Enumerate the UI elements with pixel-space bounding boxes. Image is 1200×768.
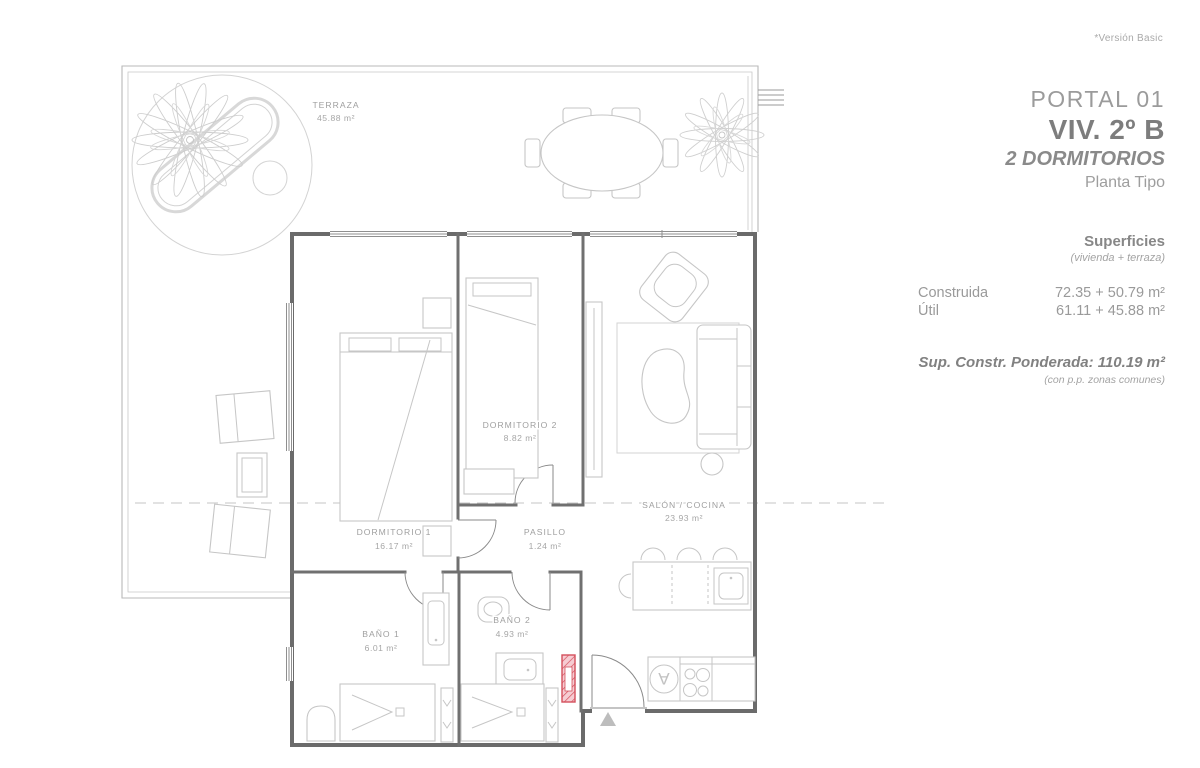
room-label-bano2: BAÑO 2 xyxy=(493,615,531,625)
surface-label: Construida xyxy=(918,284,988,302)
version-note: *Versión Basic xyxy=(1094,33,1163,44)
room-label-bano1: BAÑO 1 xyxy=(362,629,400,639)
sun-loungers xyxy=(210,391,274,558)
surface-value: 61.11 + 45.88 m² xyxy=(1056,302,1165,320)
surfaces-subtitle: (vivienda + terraza) xyxy=(1071,252,1165,264)
jacuzzi xyxy=(132,75,312,255)
weighted-surface-note: (con p.p. zonas comunes) xyxy=(1044,374,1165,386)
bedroom2-furniture xyxy=(464,278,538,494)
weighted-surface: Sup. Constr. Ponderada: 110.19 m² xyxy=(919,354,1165,371)
surface-label: Útil xyxy=(918,302,939,320)
washer-label: A xyxy=(658,669,670,688)
portal-title: PORTAL 01 xyxy=(1030,86,1165,113)
info-panel: *Versión Basic PORTAL 01 VIV. 2º B 2 DOR… xyxy=(878,0,1165,768)
surfaces-table: Construida 72.35 + 50.79 m² Útil 61.11 +… xyxy=(918,284,1165,320)
floorplan-page: A xyxy=(0,0,1200,768)
surfaces-title: Superficies xyxy=(1084,233,1165,250)
room-label-salon-cocina: SALÓN / COCINA xyxy=(642,500,726,510)
room-label-terraza: TERRAZA xyxy=(312,100,359,110)
room-label-pasillo: PASILLO xyxy=(524,527,566,537)
surfaces-row-construida: Construida 72.35 + 50.79 m² xyxy=(918,284,1165,302)
room-area-dormitorio2: 8.82 m² xyxy=(504,433,537,443)
dining-table xyxy=(525,108,678,198)
unit-title: VIV. 2º B xyxy=(1049,114,1165,146)
palm-tree-icon xyxy=(680,93,764,177)
bedroom1-furniture xyxy=(340,298,452,556)
palm-tree-icon xyxy=(132,82,248,199)
bedrooms-subtitle: 2 DORMITORIOS xyxy=(1005,148,1165,171)
shaft-highlight xyxy=(562,655,575,702)
kitchen-furniture: A xyxy=(619,548,755,701)
room-area-pasillo: 1.24 m² xyxy=(529,541,562,551)
bathroom1-fixtures xyxy=(307,593,453,742)
room-area-bano2: 4.93 m² xyxy=(496,629,529,639)
plan-type: Planta Tipo xyxy=(1085,174,1165,192)
living-room-furniture xyxy=(586,248,751,477)
room-area-terraza: 45.88 m² xyxy=(317,113,355,123)
room-label-dormitorio2: DORMITORIO 2 xyxy=(483,420,558,430)
room-label-dormitorio1: DORMITORIO 1 xyxy=(357,527,432,537)
room-area-bano1: 6.01 m² xyxy=(365,643,398,653)
surface-value: 72.35 + 50.79 m² xyxy=(1055,284,1165,302)
entrance-arrow-icon xyxy=(600,712,616,726)
room-area-dormitorio1: 16.17 m² xyxy=(375,541,413,551)
room-area-salon-cocina: 23.93 m² xyxy=(665,513,703,523)
surfaces-row-util: Útil 61.11 + 45.88 m² xyxy=(918,302,1165,320)
